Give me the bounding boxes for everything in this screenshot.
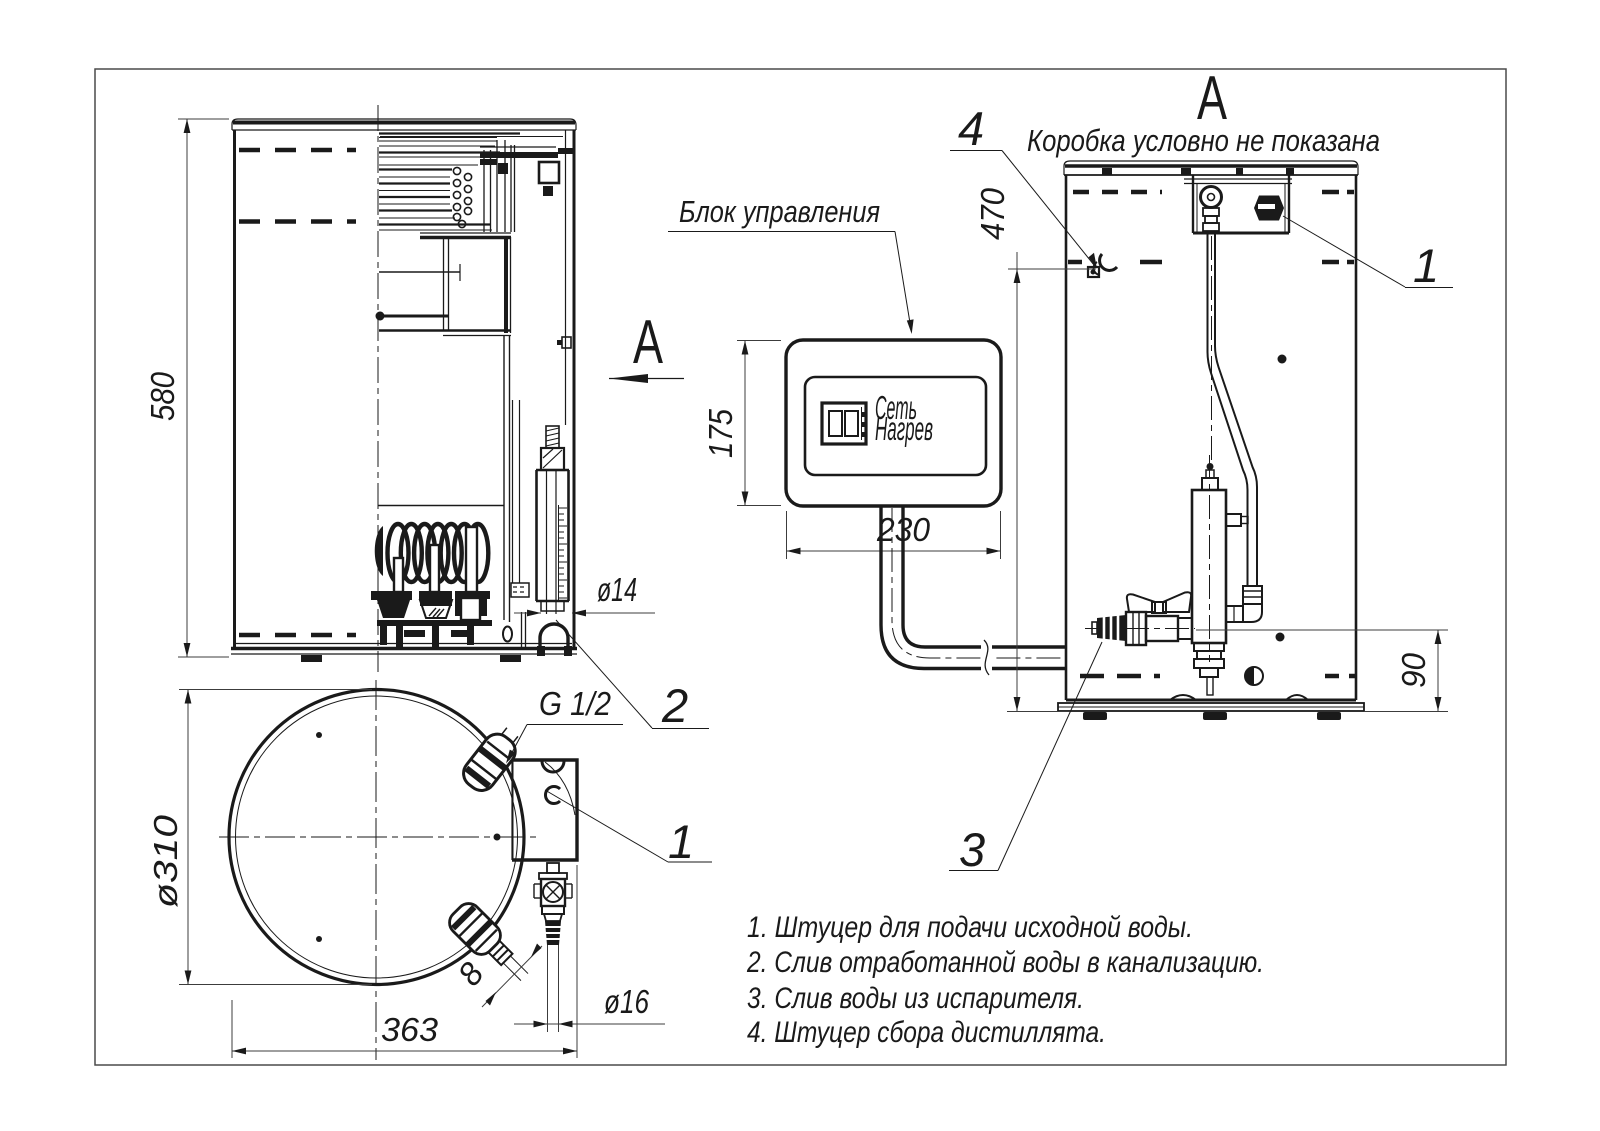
svg-text:4. Штуцер сбора дистиллята.: 4. Штуцер сбора дистиллята. (747, 1016, 1106, 1049)
svg-text:470: 470 (974, 187, 1011, 240)
svg-text:3. Слив воды из испарителя.: 3. Слив воды из испарителя. (747, 982, 1084, 1015)
svg-text:ø14: ø14 (597, 571, 637, 608)
svg-text:2: 2 (661, 679, 688, 732)
svg-text:Коробка условно не показана: Коробка условно не показана (1027, 123, 1380, 158)
svg-text:1: 1 (668, 815, 694, 868)
svg-text:4: 4 (958, 102, 984, 155)
svg-text:90: 90 (1395, 652, 1432, 688)
svg-text:Блок управления: Блок управления (679, 194, 880, 229)
svg-text:1. Штуцер для подачи исходной: 1. Штуцер для подачи исходной воды. (747, 911, 1193, 944)
svg-text:G 1/2: G 1/2 (539, 685, 611, 722)
svg-text:8: 8 (450, 955, 491, 992)
svg-text:175: 175 (702, 408, 739, 458)
svg-text:3: 3 (959, 823, 985, 876)
svg-text:363: 363 (381, 1011, 439, 1048)
svg-text:A: A (633, 308, 663, 377)
svg-text:2. Слив отработанной воды в к: 2. Слив отработанной воды в канализацию. (746, 946, 1264, 979)
svg-text:Нагрев: Нагрев (875, 410, 933, 447)
svg-text:580: 580 (144, 371, 181, 421)
svg-text:ø310: ø310 (147, 814, 184, 908)
svg-text:ø16: ø16 (604, 983, 650, 1020)
svg-text:1: 1 (1413, 239, 1439, 292)
